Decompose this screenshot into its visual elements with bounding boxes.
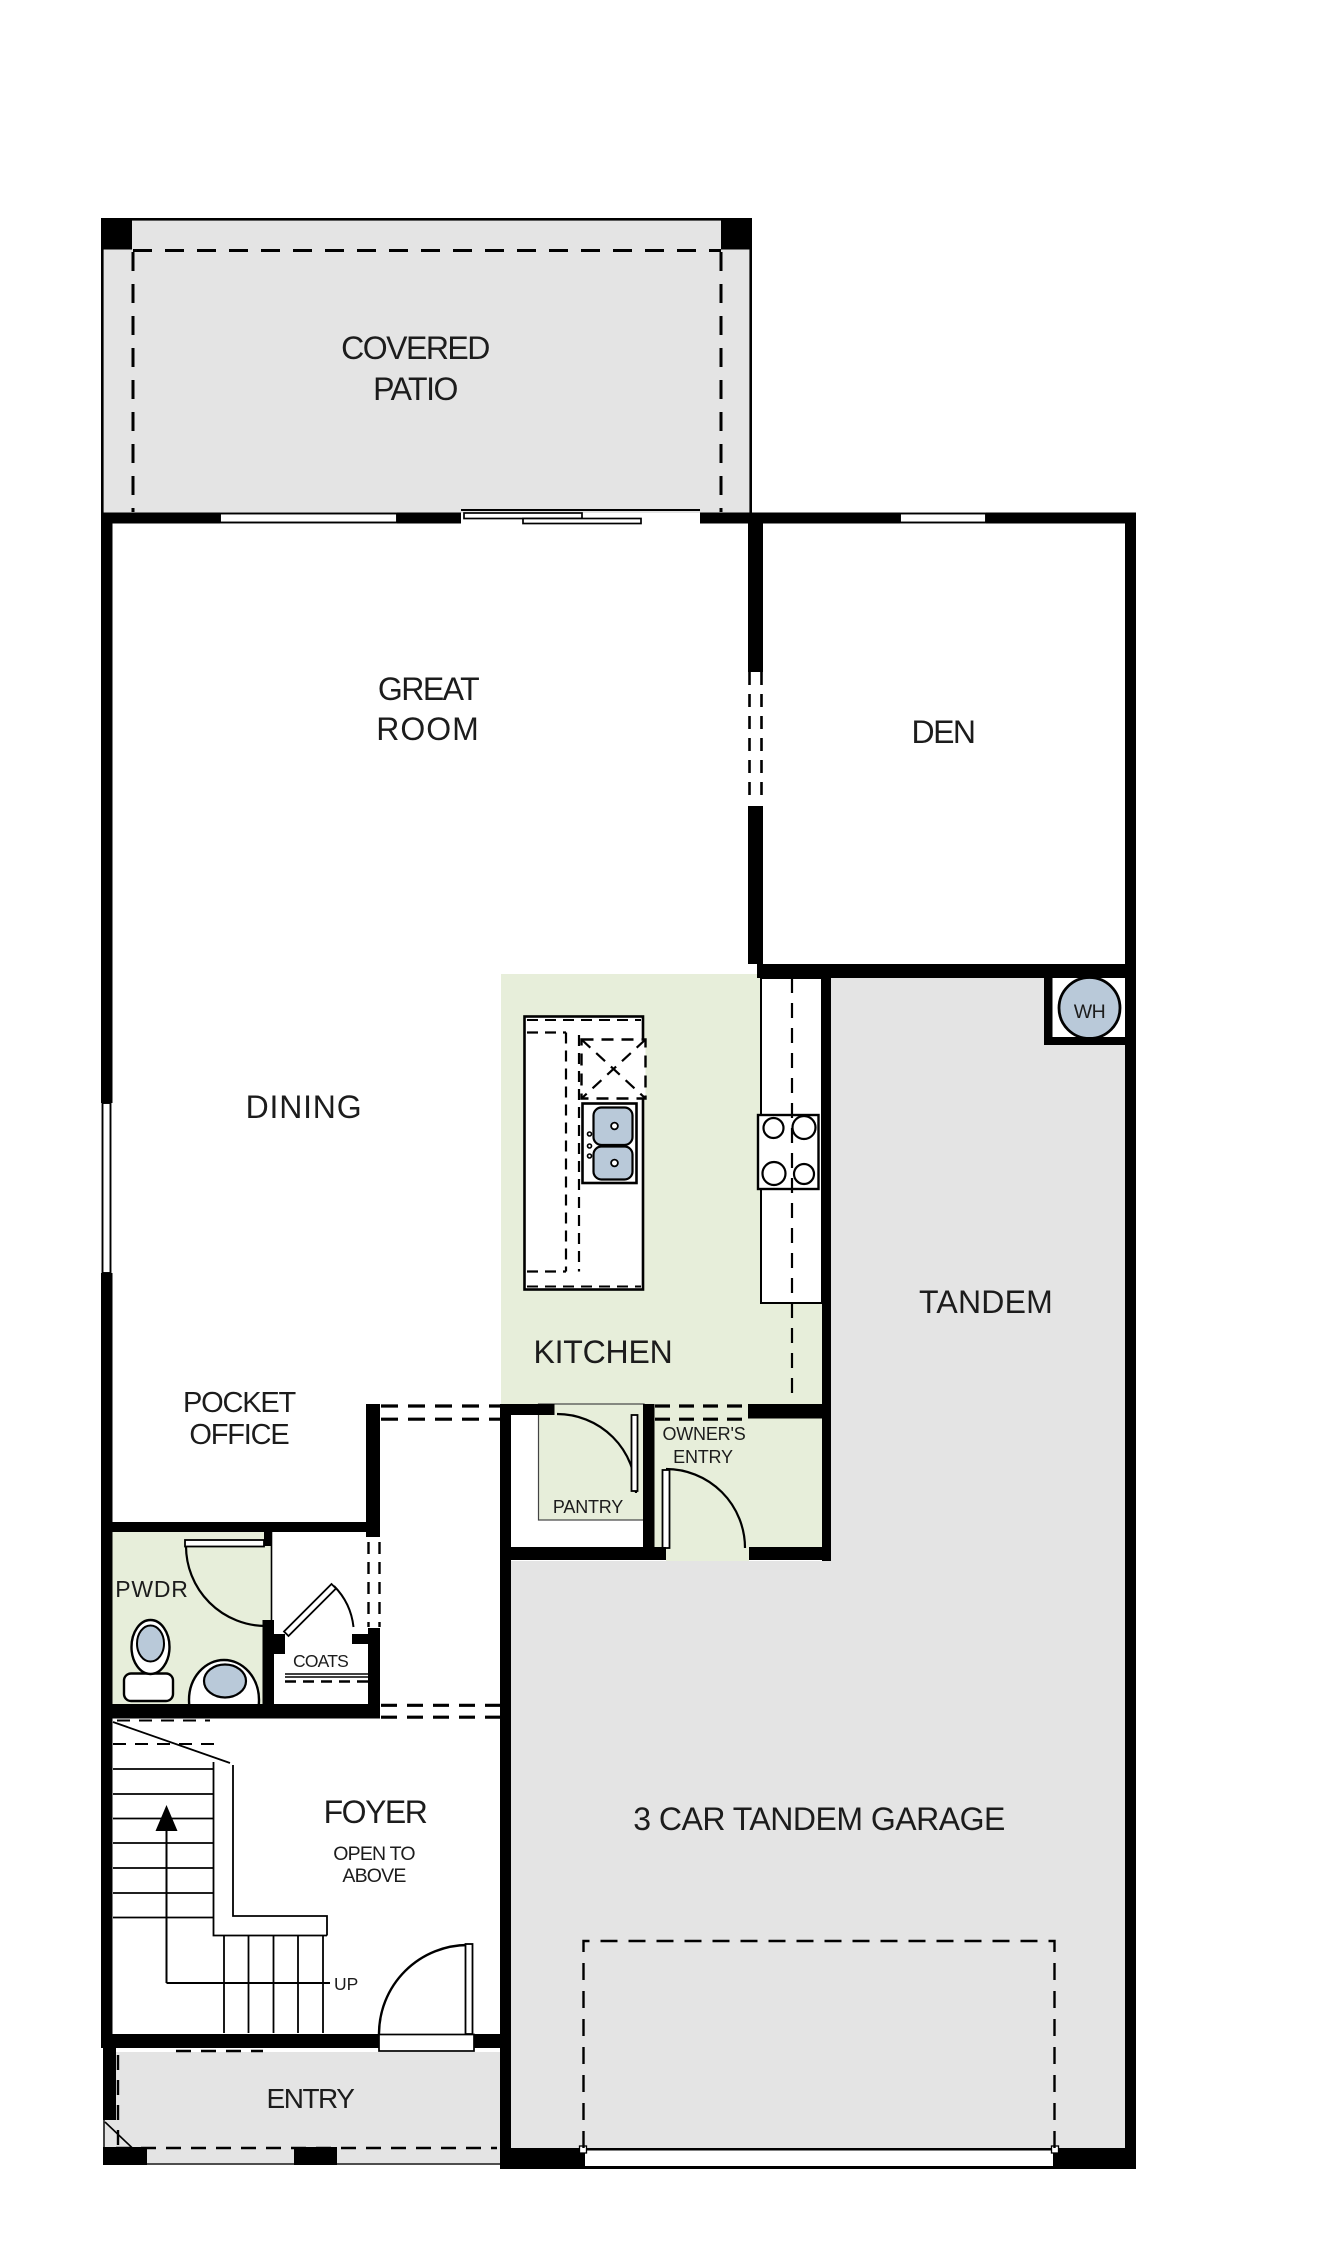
svg-text:KITCHEN: KITCHEN (533, 1334, 672, 1370)
svg-text:COVERED: COVERED (341, 330, 489, 366)
svg-text:ROOM: ROOM (376, 711, 480, 747)
svg-text:OWNER'S: OWNER'S (662, 1424, 745, 1444)
svg-text:UP: UP (334, 1974, 358, 1994)
svg-text:ABOVE: ABOVE (342, 1865, 406, 1887)
svg-text:WH: WH (1074, 1001, 1106, 1023)
svg-text:COATS: COATS (293, 1651, 348, 1671)
svg-text:OPEN TO: OPEN TO (333, 1843, 415, 1865)
svg-text:DEN: DEN (911, 714, 974, 750)
svg-text:PWDR: PWDR (115, 1576, 188, 1602)
svg-text:PATIO: PATIO (373, 371, 457, 407)
svg-text:ENTRY: ENTRY (673, 1447, 733, 1467)
svg-text:GREAT: GREAT (378, 671, 479, 707)
svg-text:POCKET: POCKET (183, 1387, 297, 1419)
svg-text:FOYER: FOYER (324, 1794, 427, 1830)
svg-text:TANDEM: TANDEM (919, 1284, 1053, 1320)
svg-text:PANTRY: PANTRY (553, 1497, 623, 1517)
svg-text:ENTRY: ENTRY (267, 2083, 356, 2114)
svg-text:DINING: DINING (246, 1089, 363, 1125)
svg-text:OFFICE: OFFICE (189, 1419, 289, 1451)
svg-text:3 CAR TANDEM GARAGE: 3 CAR TANDEM GARAGE (633, 1801, 1005, 1837)
